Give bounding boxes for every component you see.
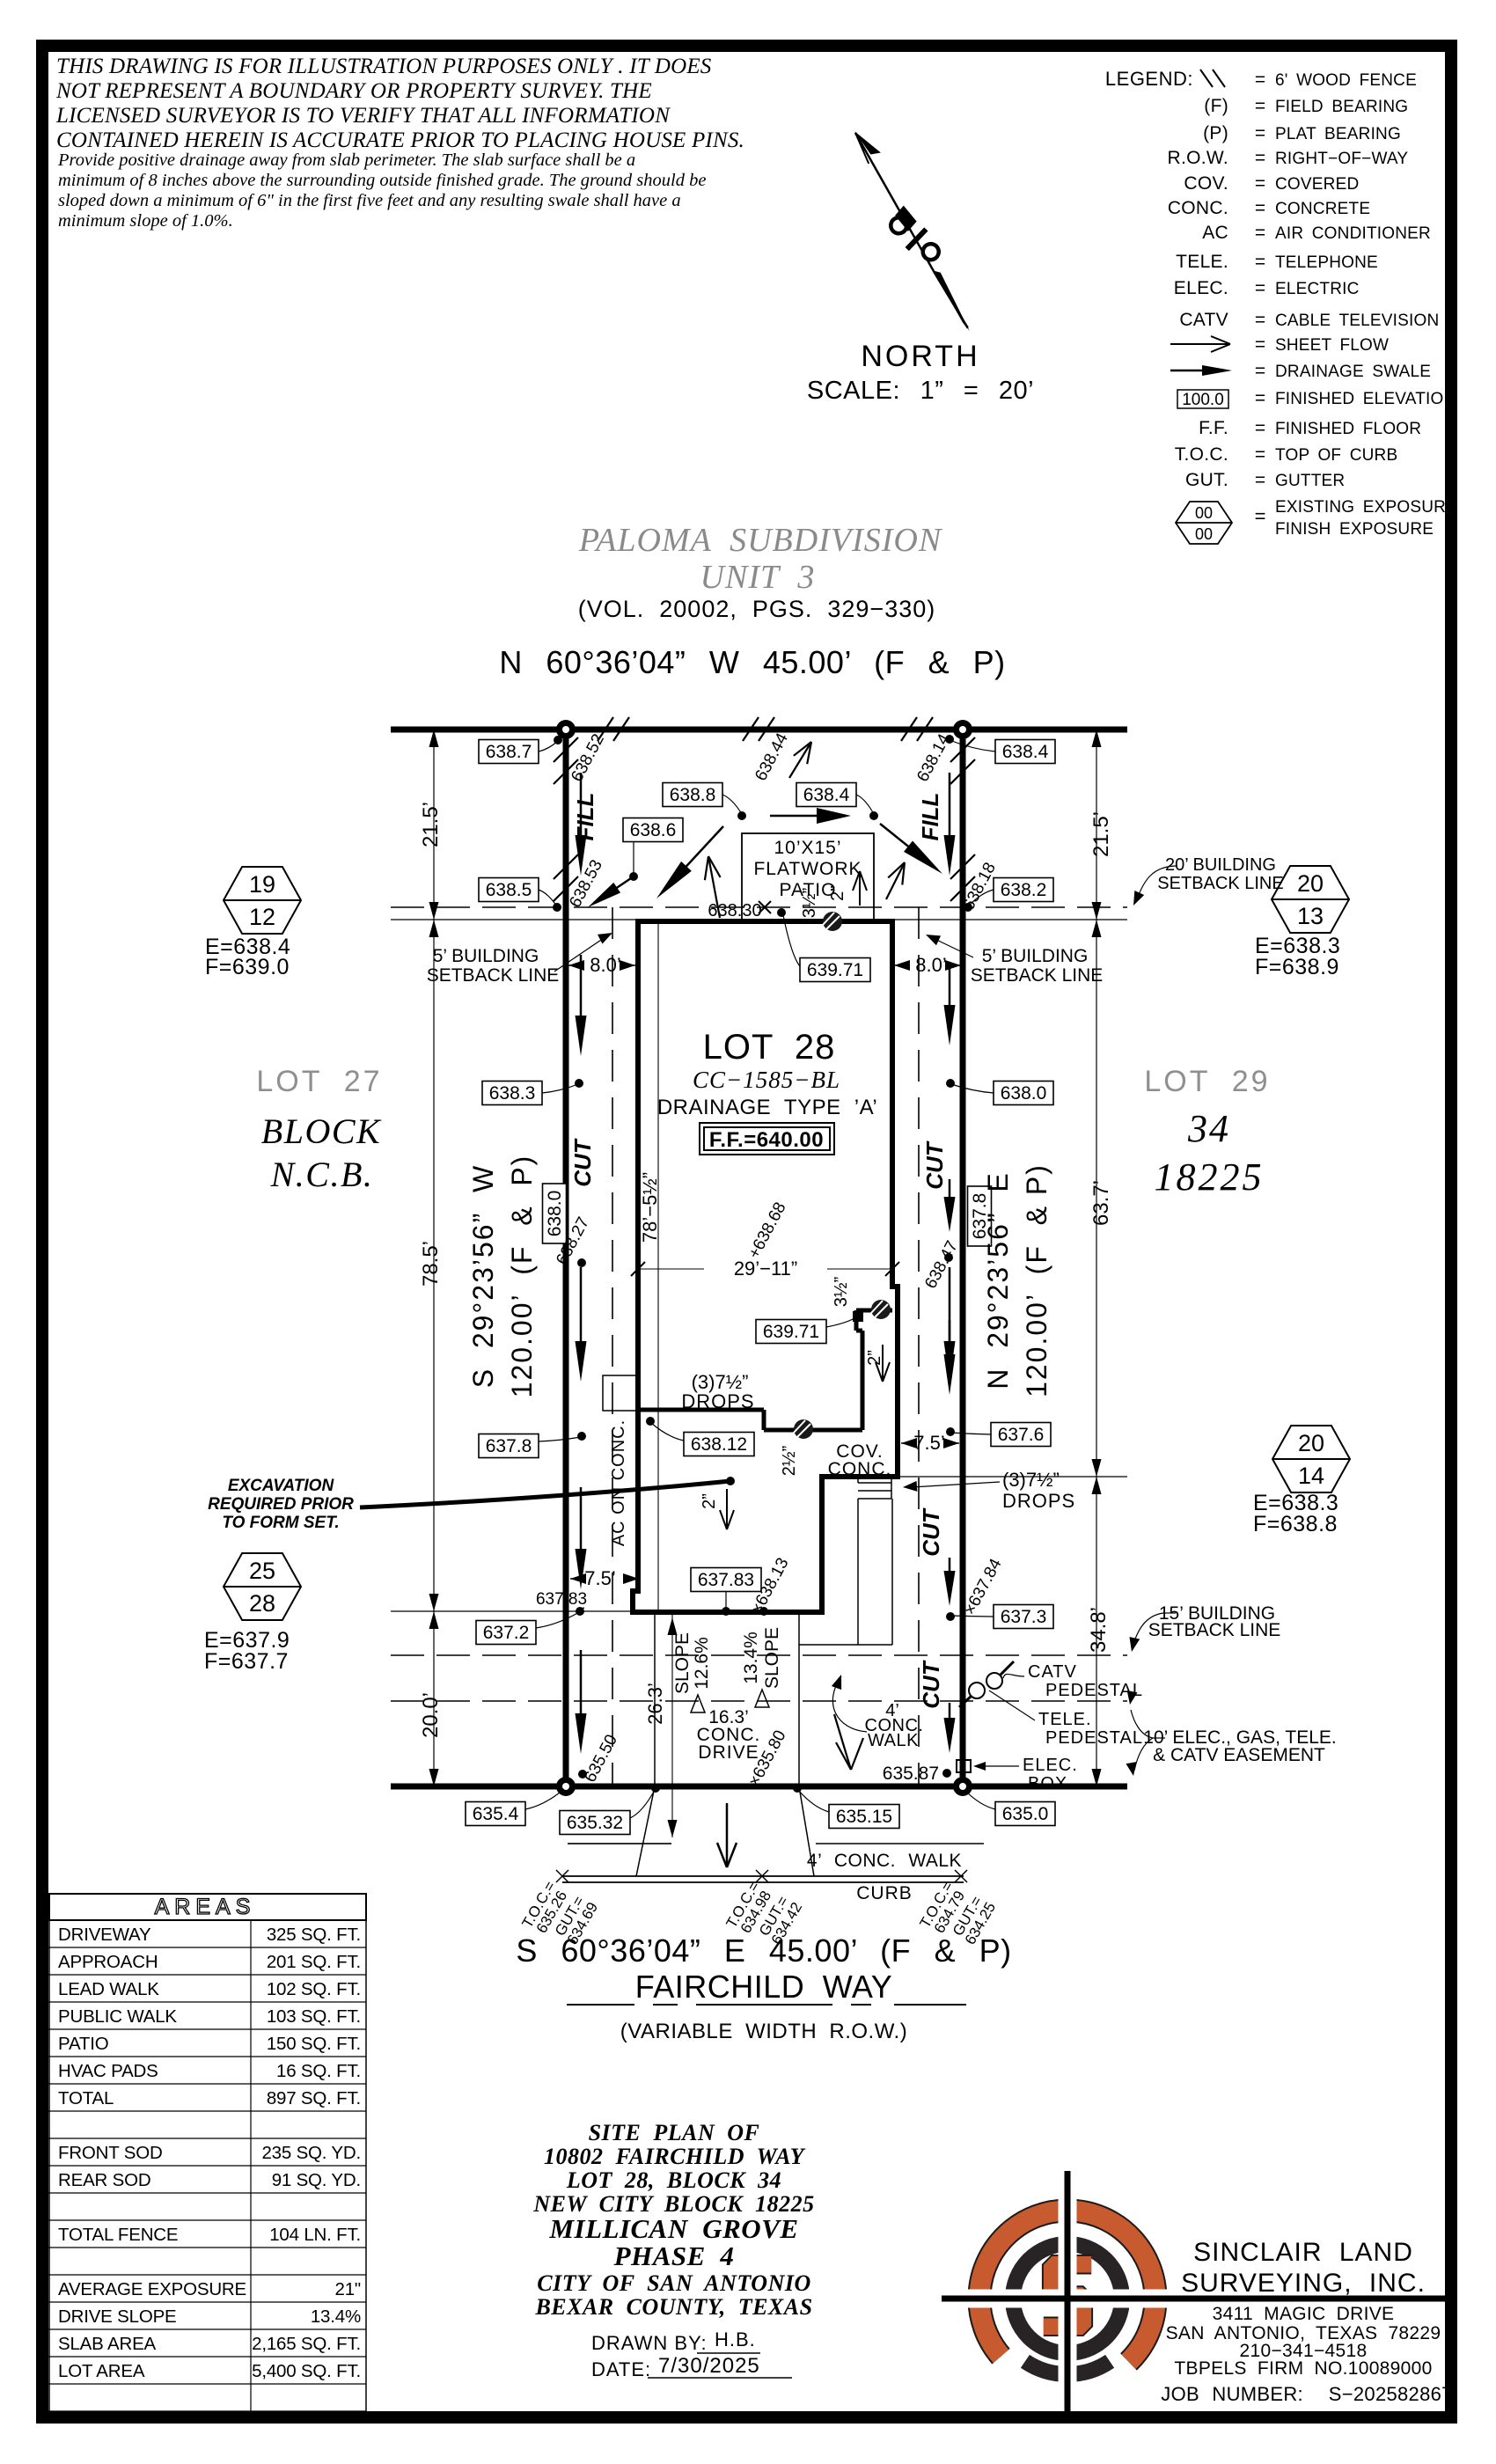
svg-text:=: = — [1255, 148, 1265, 168]
svg-text:638.7: 638.7 — [486, 742, 532, 762]
svg-text:SHEET FLOW: SHEET FLOW — [1275, 336, 1389, 355]
svg-text:7.5’: 7.5’ — [584, 1567, 615, 1589]
svg-text:29’−11”: 29’−11” — [734, 1258, 797, 1280]
svg-text:=: = — [1255, 252, 1265, 272]
svg-text:=: = — [1255, 444, 1265, 465]
svg-text:=: = — [1255, 310, 1265, 330]
svg-text:SLOPE: SLOPE — [762, 1627, 782, 1689]
svg-text:637.3: 637.3 — [1001, 1607, 1047, 1627]
svg-text:=: = — [1255, 96, 1265, 116]
svg-text:FLATWORK: FLATWORK — [753, 859, 862, 879]
svg-text:CUT: CUT — [918, 1507, 944, 1557]
svg-text:639.71: 639.71 — [807, 960, 863, 980]
svg-text:637.2: 637.2 — [483, 1623, 530, 1643]
svg-text:638.0: 638.0 — [1001, 1083, 1047, 1104]
svg-text:REQUIRED PRIOR: REQUIRED PRIOR — [208, 1495, 354, 1514]
svg-text:T.O.C.: T.O.C. — [1175, 444, 1228, 465]
svg-text:=: = — [1255, 334, 1265, 355]
svg-text:=: = — [1255, 223, 1265, 243]
svg-text:PALOMA SUBDIVISION: PALOMA SUBDIVISION — [578, 522, 943, 559]
svg-text:ELECTRIC: ELECTRIC — [1275, 280, 1360, 298]
svg-text:N 60°36’04” W 45.00’ (F & P): N 60°36’04” W 45.00’ (F & P) — [499, 644, 1005, 680]
svg-text:sloped down a minimum of 6" in: sloped down a minimum of 6" in the first… — [58, 191, 681, 210]
svg-text:(VARIABLE WIDTH R.O.W.): (VARIABLE WIDTH R.O.W.) — [620, 2020, 907, 2043]
svg-text:13: 13 — [1297, 903, 1324, 929]
svg-text:SCALE: 1” = 20’: SCALE: 1” = 20’ — [807, 377, 1034, 405]
svg-text:AVERAGE EXPOSURE: AVERAGE EXPOSURE — [58, 2279, 246, 2299]
svg-text:897 SQ. FT.: 897 SQ. FT. — [267, 2088, 361, 2108]
svg-text:10’X15’: 10’X15’ — [774, 838, 841, 858]
svg-text:PEDESTAL: PEDESTAL — [1045, 1728, 1143, 1748]
svg-text:EXISTING EXPOSURE: EXISTING EXPOSURE — [1275, 498, 1457, 517]
svg-text:=: = — [1255, 70, 1265, 90]
svg-text:638.2: 638.2 — [1001, 880, 1047, 900]
svg-text:2”: 2” — [700, 1493, 719, 1509]
svg-text:102 SQ. FT.: 102 SQ. FT. — [267, 1979, 361, 1999]
svg-text:10802 FAIRCHILD WAY: 10802 FAIRCHILD WAY — [544, 2144, 806, 2169]
svg-text:DROPS: DROPS — [1002, 1490, 1075, 1512]
svg-text:SETBACK LINE: SETBACK LINE — [1148, 1620, 1281, 1640]
svg-text:TOTAL FENCE: TOTAL FENCE — [58, 2225, 178, 2245]
svg-text:CONC.: CONC. — [828, 1459, 892, 1479]
svg-text:2”: 2” — [865, 1350, 884, 1366]
svg-text:APPROACH: APPROACH — [58, 1952, 158, 1972]
svg-text:635.0: 635.0 — [1002, 1804, 1049, 1824]
svg-text:638.4: 638.4 — [1002, 742, 1049, 762]
svg-text:635.15: 635.15 — [836, 1807, 892, 1827]
svg-text:=: = — [1255, 198, 1265, 218]
svg-text:NOT REPRESENT A BOUNDARY OR PR: NOT REPRESENT A BOUNDARY OR PROPERTY SUR… — [55, 79, 652, 103]
svg-text:AC ON CONC.: AC ON CONC. — [609, 1419, 628, 1546]
svg-text:TBPELS FIRM NO.10089000: TBPELS FIRM NO.10089000 — [1174, 2358, 1432, 2379]
svg-text:TELE.: TELE. — [1038, 1710, 1092, 1729]
svg-text:ELEC.: ELEC. — [1174, 278, 1228, 298]
svg-text:HVAC PADS: HVAC PADS — [58, 2061, 158, 2081]
svg-text:TOTAL: TOTAL — [58, 2088, 114, 2108]
svg-text:PUBLIC WALK: PUBLIC WALK — [58, 2006, 177, 2027]
svg-text:21.5’: 21.5’ — [419, 802, 443, 847]
svg-text:(3)7½”: (3)7½” — [1002, 1469, 1060, 1491]
svg-text:PATIO: PATIO — [58, 2034, 108, 2054]
svg-text:78’−5½”: 78’−5½” — [639, 1172, 661, 1243]
svg-text:DRIVEWAY: DRIVEWAY — [58, 1925, 151, 1945]
svg-text:CONCRETE: CONCRETE — [1275, 200, 1370, 218]
svg-text:S 29°23’56” W: S 29°23’56” W — [467, 1164, 499, 1388]
svg-text:DRAINAGE SWALE: DRAINAGE SWALE — [1275, 363, 1431, 381]
svg-text:TO FORM SET.: TO FORM SET. — [222, 1514, 339, 1532]
svg-text:639.71: 639.71 — [763, 1322, 819, 1342]
svg-text:2½”: 2½” — [780, 1446, 799, 1476]
svg-text:25: 25 — [249, 1558, 275, 1584]
svg-text:635.4: 635.4 — [473, 1804, 519, 1824]
svg-text:DRAWN BY:: DRAWN BY: — [591, 2332, 708, 2354]
svg-text:GUTTER: GUTTER — [1275, 472, 1345, 490]
svg-text:NORTH: NORTH — [861, 340, 979, 373]
svg-text:3411 MAGIC DRIVE: 3411 MAGIC DRIVE — [1213, 2304, 1395, 2324]
svg-text:S 60°36’04” E 45.00’ (F & P): S 60°36’04” E 45.00’ (F & P) — [516, 1932, 1011, 1969]
svg-text:JOB NUMBER: S−202582867: JOB NUMBER: S−202582867 — [1161, 2383, 1452, 2405]
svg-text:21": 21" — [335, 2279, 361, 2299]
svg-text:EXCAVATION: EXCAVATION — [228, 1477, 335, 1495]
svg-text:SITE PLAN OF: SITE PLAN OF — [589, 2120, 760, 2145]
svg-text:20: 20 — [1298, 1430, 1324, 1456]
svg-text:H.B.: H.B. — [715, 2328, 756, 2350]
svg-text:SURVEYING, INC.: SURVEYING, INC. — [1181, 2269, 1426, 2298]
svg-text:DRAINAGE TYPE ’A’: DRAINAGE TYPE ’A’ — [657, 1096, 877, 1119]
svg-text:34.8’: 34.8’ — [1087, 1607, 1111, 1653]
svg-text:7/30/2025: 7/30/2025 — [658, 2354, 760, 2378]
svg-text:FINISH EXPOSURE: FINISH EXPOSURE — [1275, 520, 1434, 539]
svg-text:325 SQ. FT.: 325 SQ. FT. — [267, 1925, 361, 1945]
svg-text:638.3: 638.3 — [489, 1083, 536, 1104]
svg-text:235 SQ. YD.: 235 SQ. YD. — [261, 2143, 361, 2163]
svg-text:AREAS: AREAS — [155, 1895, 256, 1919]
svg-text:TOP OF CURB: TOP OF CURB — [1275, 446, 1397, 465]
svg-text:(F): (F) — [1204, 96, 1228, 116]
svg-text:FILL: FILL — [572, 793, 598, 841]
svg-text:AC: AC — [1202, 223, 1228, 243]
svg-text:LEGEND:: LEGEND: — [1105, 68, 1193, 90]
svg-text:& CATV EASEMENT: & CATV EASEMENT — [1153, 1745, 1325, 1765]
svg-text:28: 28 — [249, 1590, 275, 1617]
svg-text:638.12: 638.12 — [691, 1434, 747, 1455]
svg-text:RIGHT−OF−WAY: RIGHT−OF−WAY — [1275, 150, 1408, 168]
svg-text:LOT 28, BLOCK 34: LOT 28, BLOCK 34 — [566, 2167, 781, 2193]
svg-text:201 SQ. FT.: 201 SQ. FT. — [267, 1952, 361, 1972]
svg-text:DATE:: DATE: — [591, 2358, 651, 2380]
svg-text:CUT: CUT — [921, 1140, 948, 1190]
svg-text:N.C.B.: N.C.B. — [270, 1155, 374, 1194]
svg-text:CURB: CURB — [856, 1883, 913, 1903]
svg-text:R.O.W.: R.O.W. — [1168, 148, 1228, 168]
svg-text:18225: 18225 — [1155, 1155, 1265, 1199]
svg-text:CONC.: CONC. — [1168, 198, 1228, 218]
svg-text:Provide positive drainage away: Provide positive drainage away from slab… — [57, 150, 635, 170]
svg-text:WALK: WALK — [868, 1731, 919, 1750]
svg-text:78.5’: 78.5’ — [419, 1241, 443, 1287]
svg-text:635.87: 635.87 — [883, 1764, 939, 1784]
svg-text:00: 00 — [1195, 504, 1213, 522]
svg-text:637.8: 637.8 — [486, 1436, 532, 1456]
svg-text:34: 34 — [1187, 1107, 1230, 1150]
svg-text:5,400 SQ. FT.: 5,400 SQ. FT. — [252, 2361, 361, 2381]
svg-text:5’ BUILDING: 5’ BUILDING — [982, 946, 1089, 966]
svg-text:CABLE TELEVISION: CABLE TELEVISION — [1275, 312, 1439, 330]
svg-text:7.5’: 7.5’ — [913, 1432, 944, 1454]
svg-text:(VOL. 20002, PGS. 329−330): (VOL. 20002, PGS. 329−330) — [578, 596, 936, 622]
svg-text:21.5’: 21.5’ — [1089, 811, 1113, 857]
svg-text:CUT: CUT — [918, 1660, 944, 1709]
svg-text:637.83: 637.83 — [536, 1590, 587, 1609]
svg-text:UNIT 3: UNIT 3 — [700, 559, 816, 596]
svg-text:THIS DRAWING IS FOR ILLUSTRATI: THIS DRAWING IS FOR ILLUSTRATION PURPOSE… — [56, 55, 712, 78]
svg-text:150 SQ. FT.: 150 SQ. FT. — [267, 2034, 361, 2054]
svg-text:F=638.9: F=638.9 — [1255, 955, 1339, 979]
svg-text:SINCLAIR LAND: SINCLAIR LAND — [1193, 2238, 1413, 2267]
svg-text:BOX: BOX — [1028, 1774, 1067, 1793]
svg-text:PHASE 4: PHASE 4 — [613, 2240, 735, 2271]
svg-text:12: 12 — [249, 904, 275, 930]
svg-text:00: 00 — [1195, 525, 1213, 543]
svg-text:19: 19 — [249, 871, 275, 898]
svg-text:TELE.: TELE. — [1176, 252, 1228, 272]
svg-text:=: = — [1255, 418, 1265, 438]
svg-text:=: = — [1255, 361, 1265, 381]
svg-text:3½”: 3½” — [832, 1277, 851, 1307]
svg-text:13.4%: 13.4% — [311, 2306, 361, 2327]
svg-text:FRONT SOD: FRONT SOD — [58, 2143, 163, 2163]
svg-text:2”: 2” — [828, 885, 847, 901]
svg-text:638.0: 638.0 — [545, 1191, 565, 1237]
svg-text:637.83: 637.83 — [698, 1570, 754, 1590]
svg-text:12.6%: 12.6% — [692, 1637, 712, 1690]
svg-text:635.32: 635.32 — [567, 1813, 623, 1833]
svg-text:13.4%: 13.4% — [741, 1632, 761, 1684]
svg-text:N 29°23’56” E: N 29°23’56” E — [982, 1171, 1014, 1389]
svg-text:LOT AREA: LOT AREA — [58, 2361, 145, 2381]
svg-text:F=637.7: F=637.7 — [204, 1649, 289, 1674]
svg-text:(P): (P) — [1203, 123, 1228, 143]
svg-text:FINISHED ELEVATION: FINISHED ELEVATION — [1275, 390, 1456, 408]
svg-text:F.F.: F.F. — [1199, 418, 1228, 438]
svg-text:2,165 SQ. FT.: 2,165 SQ. FT. — [252, 2334, 361, 2354]
svg-text:LICENSED SURVEYOR IS TO VERIFY: LICENSED SURVEYOR IS TO VERIFY THAT ALL … — [55, 104, 671, 128]
svg-text:=: = — [1255, 278, 1265, 298]
svg-text:TELEPHONE: TELEPHONE — [1275, 253, 1378, 272]
svg-text:103 SQ. FT.: 103 SQ. FT. — [267, 2006, 361, 2027]
svg-text:CATV: CATV — [1179, 310, 1228, 330]
svg-text:91 SQ. YD.: 91 SQ. YD. — [272, 2170, 361, 2190]
svg-text:FIELD BEARING: FIELD BEARING — [1275, 98, 1408, 116]
svg-text:CUT: CUT — [569, 1138, 596, 1187]
svg-text:20’ BUILDING: 20’ BUILDING — [1165, 855, 1276, 875]
svg-text:638.5: 638.5 — [486, 880, 532, 900]
svg-text:DRIVE SLOPE: DRIVE SLOPE — [58, 2306, 177, 2327]
svg-text:CATV: CATV — [1028, 1662, 1077, 1682]
svg-text:8.0’: 8.0’ — [915, 954, 946, 976]
svg-text:GUT.: GUT. — [1185, 470, 1228, 490]
svg-text:120.00’ (F & P): 120.00’ (F & P) — [506, 1155, 538, 1398]
svg-text:104 LN. FT.: 104 LN. FT. — [269, 2225, 361, 2245]
svg-text:SLAB AREA: SLAB AREA — [58, 2334, 157, 2354]
svg-text:3½”: 3½” — [800, 888, 819, 918]
svg-text:MILLICAN GROVE: MILLICAN GROVE — [548, 2213, 798, 2244]
svg-text:LOT 29: LOT 29 — [1144, 1065, 1270, 1098]
svg-text:SETBACK LINE: SETBACK LINE — [1157, 874, 1283, 893]
svg-text:100.0: 100.0 — [1182, 391, 1224, 409]
svg-text:638.8: 638.8 — [670, 785, 716, 805]
svg-text:BEXAR COUNTY, TEXAS: BEXAR COUNTY, TEXAS — [534, 2294, 812, 2320]
svg-text:minimum slope of 1.0%.: minimum slope of 1.0%. — [58, 211, 233, 231]
svg-text:minimum of 8 inches above the: minimum of 8 inches above the surroundin… — [58, 171, 706, 190]
svg-text:FAIRCHILD WAY: FAIRCHILD WAY — [635, 1969, 893, 2005]
svg-text:SETBACK LINE: SETBACK LINE — [427, 965, 560, 986]
svg-text:=: = — [1255, 505, 1266, 527]
svg-text:=: = — [1255, 388, 1265, 408]
svg-text:14: 14 — [1298, 1463, 1324, 1489]
svg-text:AIR CONDITIONER: AIR CONDITIONER — [1275, 224, 1431, 243]
svg-text:8.0’: 8.0’ — [590, 954, 620, 976]
svg-text:26.3’: 26.3’ — [644, 1683, 666, 1725]
svg-text:63.7’: 63.7’ — [1089, 1180, 1113, 1226]
svg-text:6' WOOD FENCE: 6' WOOD FENCE — [1275, 71, 1417, 90]
svg-text:120.00’ (F & P): 120.00’ (F & P) — [1021, 1163, 1052, 1397]
svg-text:REAR SOD: REAR SOD — [58, 2170, 150, 2190]
svg-text:ELEC.: ELEC. — [1023, 1756, 1078, 1775]
svg-text:PLAT BEARING: PLAT BEARING — [1275, 125, 1401, 143]
svg-text:CC−1585−BL: CC−1585−BL — [693, 1067, 840, 1093]
svg-text:LOT 28: LOT 28 — [703, 1028, 836, 1067]
svg-text:5’ BUILDING: 5’ BUILDING — [433, 946, 539, 966]
svg-text:BLOCK: BLOCK — [261, 1111, 382, 1151]
svg-text:=: = — [1255, 173, 1265, 194]
svg-text:638.30: 638.30 — [708, 901, 761, 920]
svg-text:FILL: FILL — [917, 793, 943, 841]
svg-text:SETBACK LINE: SETBACK LINE — [971, 965, 1104, 986]
svg-text:COVERED: COVERED — [1275, 175, 1359, 194]
svg-text:F=638.8: F=638.8 — [1253, 1512, 1338, 1536]
svg-text:20: 20 — [1297, 870, 1324, 897]
svg-text:=: = — [1255, 470, 1265, 490]
svg-text:F.F.=640.00: F.F.=640.00 — [709, 1128, 824, 1152]
svg-text:20.0’: 20.0’ — [419, 1692, 443, 1738]
svg-text:4’ CONC. WALK: 4’ CONC. WALK — [807, 1851, 962, 1871]
svg-text:DROPS: DROPS — [681, 1390, 754, 1412]
svg-text:638.4: 638.4 — [803, 785, 850, 805]
svg-text:LEAD WALK: LEAD WALK — [58, 1979, 159, 1999]
svg-text:CONTAINED HEREIN IS ACCURATE P: CONTAINED HEREIN IS ACCURATE PRIOR TO PL… — [56, 128, 744, 152]
svg-text:SLOPE: SLOPE — [672, 1632, 693, 1694]
svg-text:LOT 27: LOT 27 — [256, 1065, 382, 1098]
svg-text:=: = — [1255, 123, 1265, 143]
svg-text:DRIVE: DRIVE — [698, 1742, 759, 1763]
svg-text:638.6: 638.6 — [630, 820, 677, 840]
svg-text:637.6: 637.6 — [998, 1425, 1045, 1445]
svg-text:16 SQ. FT.: 16 SQ. FT. — [276, 2061, 361, 2081]
svg-text:F=639.0: F=639.0 — [205, 955, 290, 979]
svg-text:CITY OF SAN ANTONIO: CITY OF SAN ANTONIO — [537, 2270, 811, 2296]
svg-text:COV.: COV. — [1184, 173, 1228, 194]
svg-text:FINISHED FLOOR: FINISHED FLOOR — [1275, 420, 1421, 438]
